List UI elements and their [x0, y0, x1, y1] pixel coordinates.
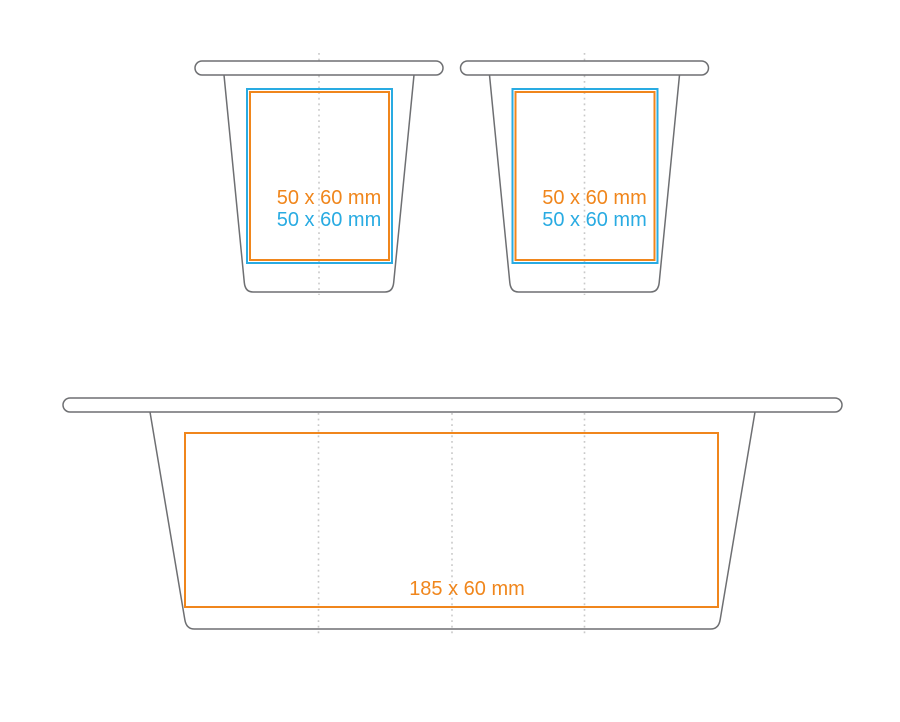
cup-left-print-size-label-blue: 50 x 60 mm — [277, 209, 381, 231]
cup-left-print-area-orange — [250, 92, 389, 260]
cup-right-print-size-label-orange: 50 x 60 mm — [542, 187, 646, 209]
tub-print-size-label-orange: 185 x 60 mm — [409, 578, 525, 600]
cup-right-print-size-label-blue: 50 x 60 mm — [542, 209, 646, 231]
tub-rim — [63, 398, 842, 412]
tub: 185 x 60 mm — [63, 398, 842, 636]
cup-right-print-area-orange — [516, 92, 655, 260]
cup-right: 50 x 60 mm 50 x 60 mm — [461, 53, 709, 295]
cup-left: 50 x 60 mm 50 x 60 mm — [195, 53, 443, 295]
cup-left-print-size-label-orange: 50 x 60 mm — [277, 187, 381, 209]
dieline-canvas: 50 x 60 mm 50 x 60 mm 50 x 60 mm 50 x 60… — [0, 0, 900, 722]
cup-right-rim — [461, 61, 709, 75]
dieline-page: 50 x 60 mm 50 x 60 mm 50 x 60 mm 50 x 60… — [0, 0, 900, 722]
cup-left-rim — [195, 61, 443, 75]
